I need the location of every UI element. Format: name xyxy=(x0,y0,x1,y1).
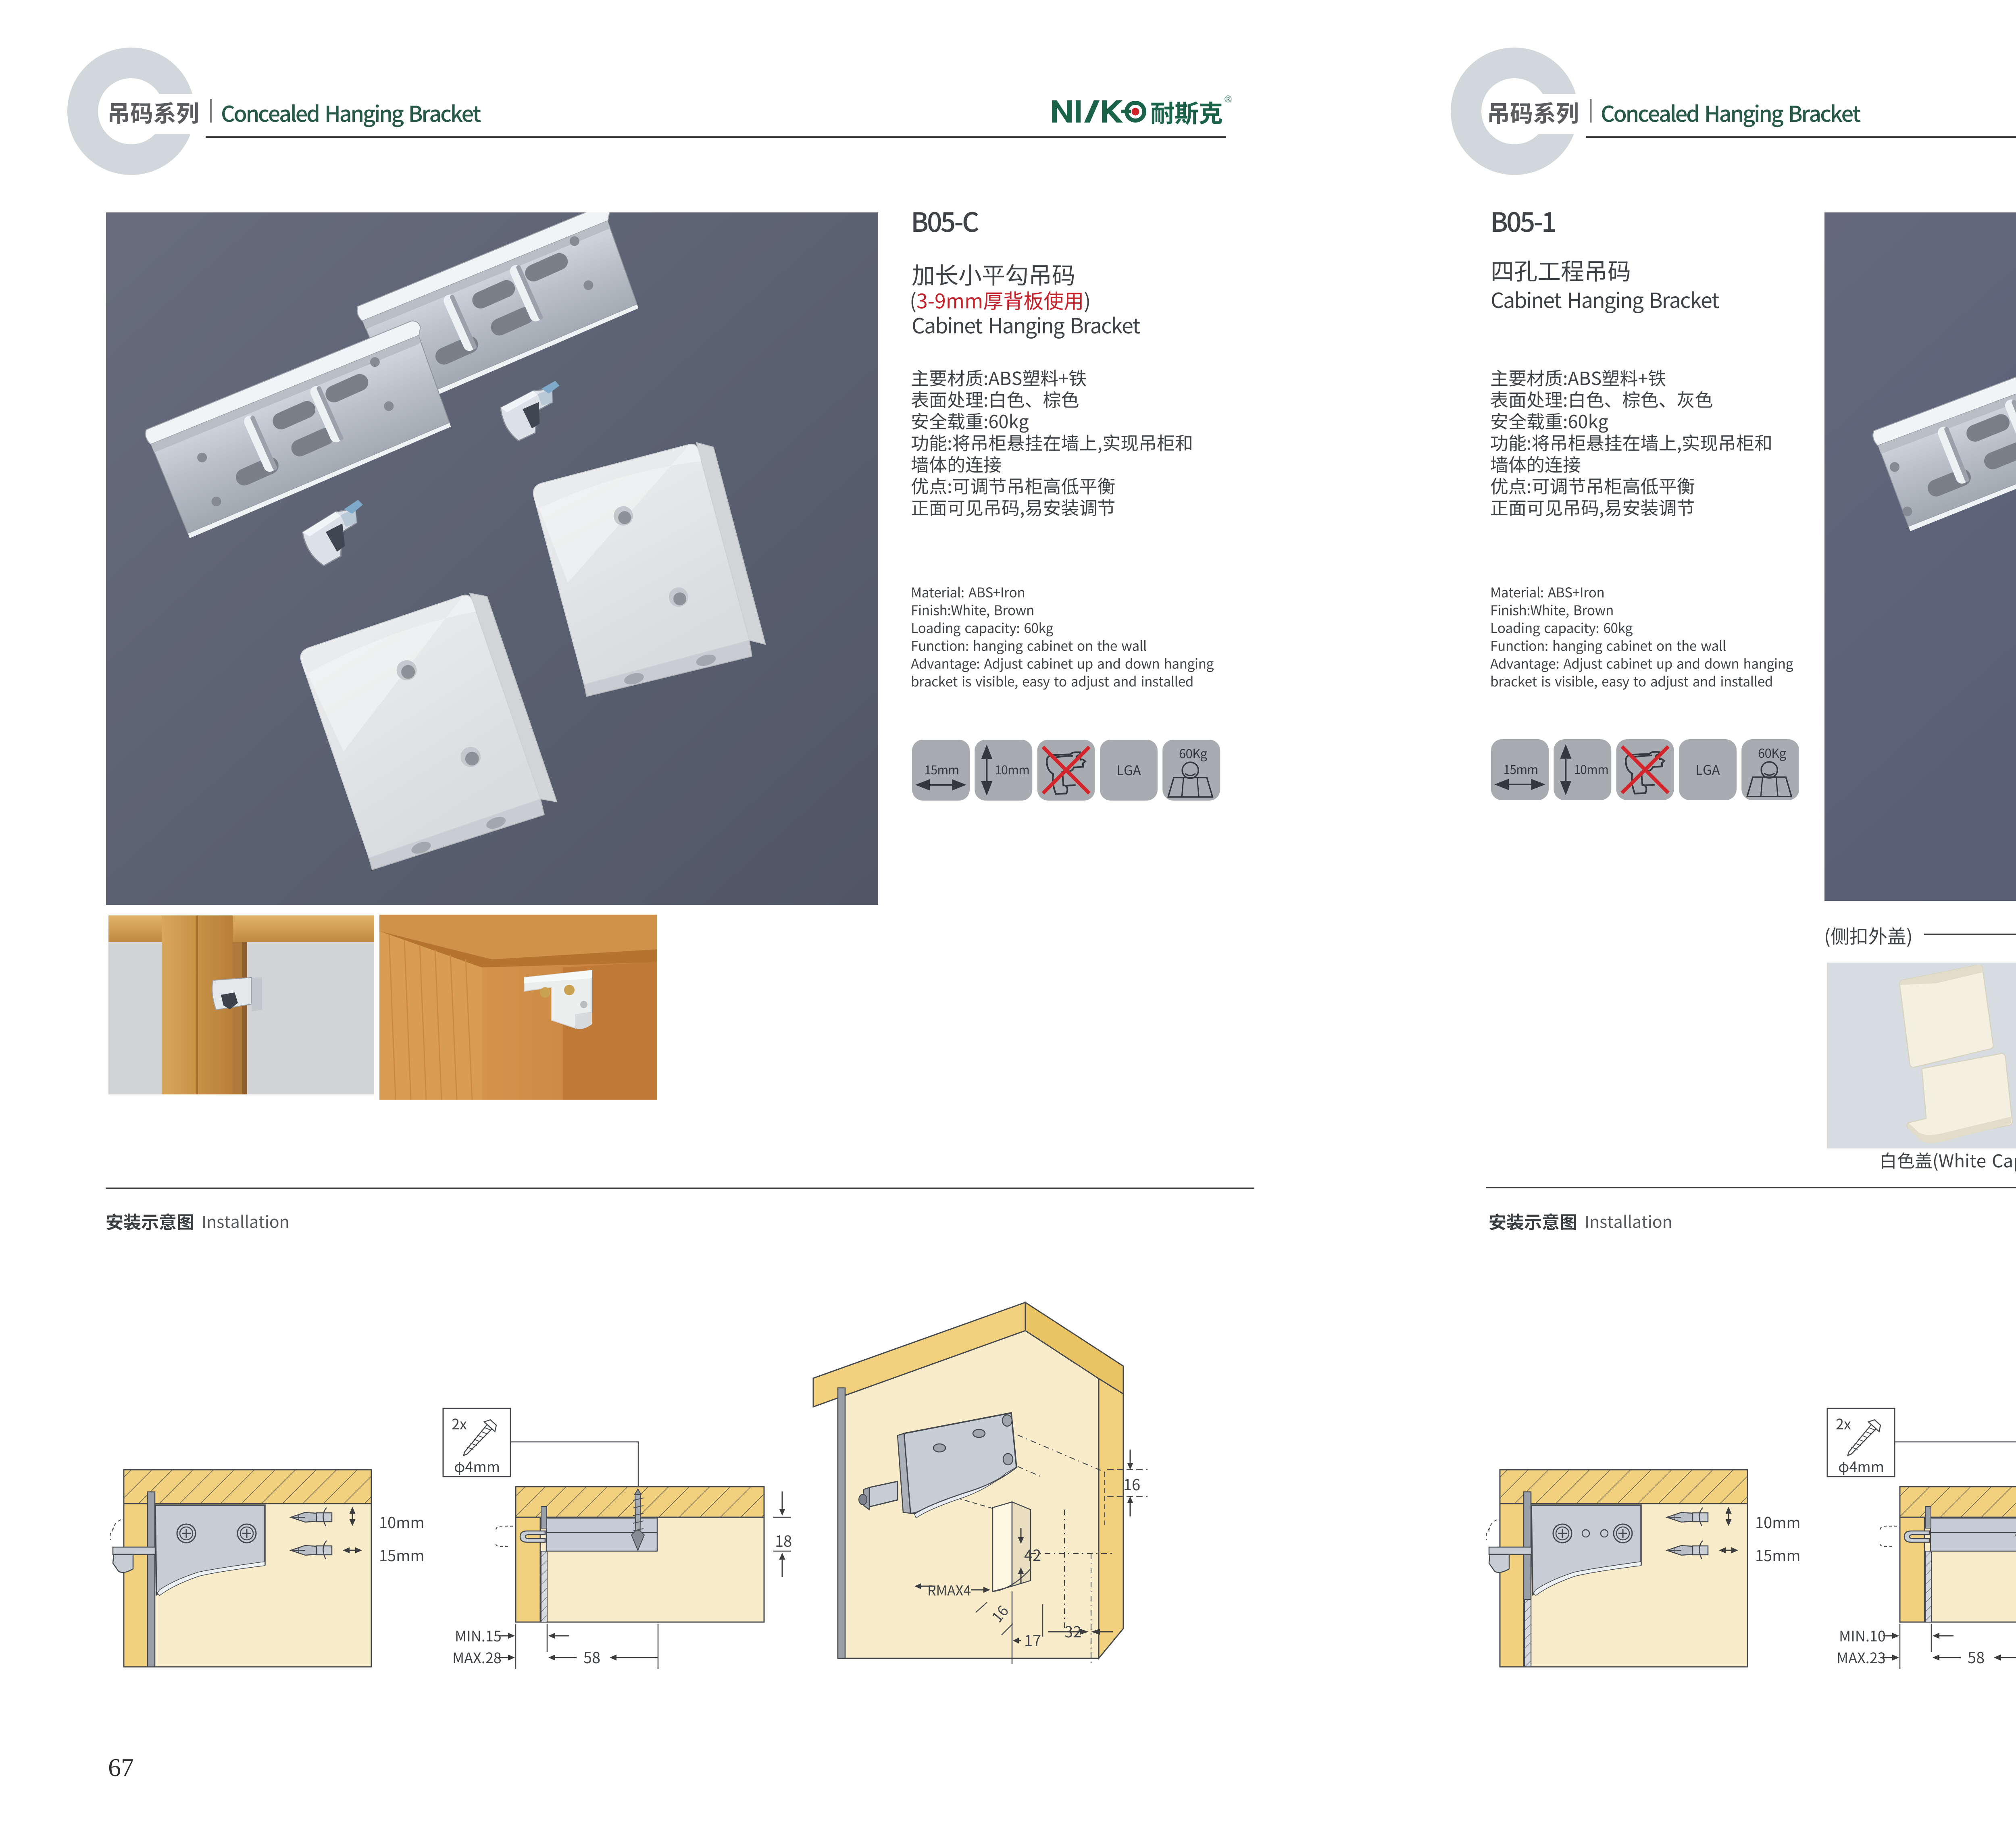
svg-text:®: ® xyxy=(1225,94,1232,105)
svg-text:67: 67 xyxy=(108,1753,134,1782)
